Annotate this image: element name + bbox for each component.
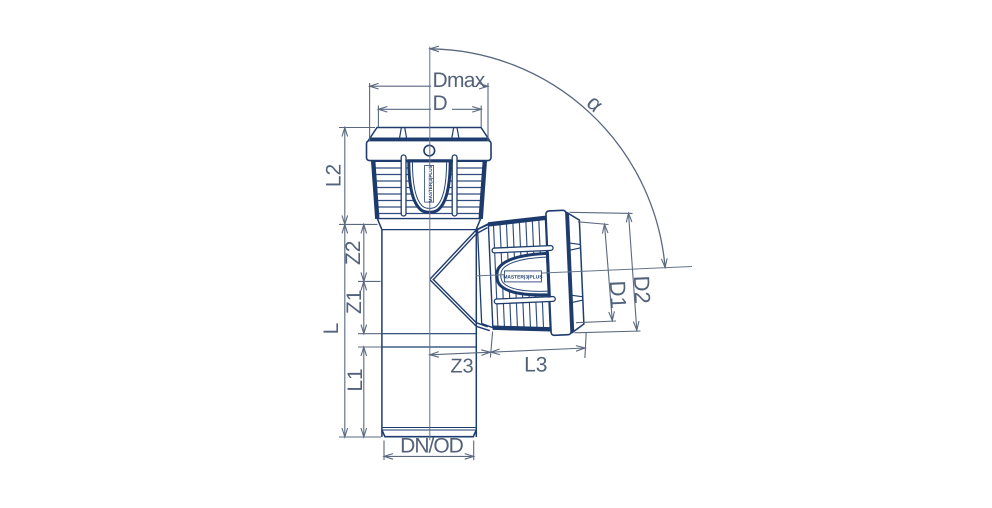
svg-text:Z1: Z1: [343, 290, 366, 315]
svg-text:D1: D1: [605, 280, 631, 309]
svg-text:L1: L1: [344, 368, 367, 391]
svg-text:L: L: [320, 323, 343, 335]
svg-text:α: α: [582, 90, 609, 117]
svg-text:Dmax: Dmax: [433, 69, 486, 92]
svg-text:MASTER|3|PLUS: MASTER|3|PLUS: [503, 275, 543, 281]
svg-text:DN/OD: DN/OD: [400, 435, 464, 458]
svg-text:L3: L3: [524, 353, 547, 376]
svg-text:Z3: Z3: [450, 356, 473, 378]
svg-text:D2: D2: [629, 275, 655, 304]
svg-text:L2: L2: [323, 164, 346, 187]
svg-text:Z2: Z2: [342, 241, 365, 266]
svg-text:D: D: [433, 92, 448, 115]
